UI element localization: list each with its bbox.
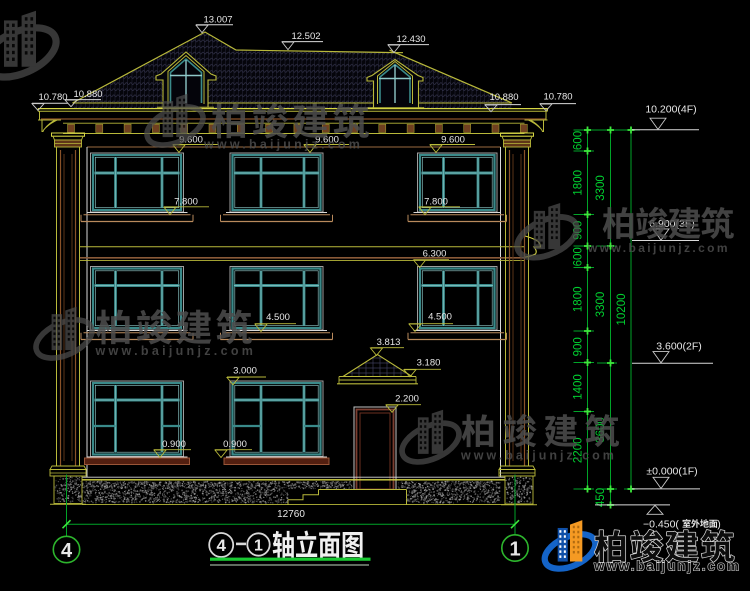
svg-text:900: 900 <box>573 337 585 356</box>
svg-text:1400: 1400 <box>573 374 585 400</box>
svg-text:3300: 3300 <box>595 175 607 201</box>
svg-text:9.600: 9.600 <box>441 135 465 146</box>
svg-text:3300: 3300 <box>595 292 607 318</box>
svg-text:www.baijunjz.com: www.baijunjz.com <box>593 559 741 574</box>
svg-text:1800: 1800 <box>573 170 585 196</box>
svg-text:1: 1 <box>509 538 520 560</box>
svg-text:): ) <box>717 519 721 531</box>
svg-text:www.baijunjz.com: www.baijunjz.com <box>203 138 363 152</box>
svg-text:www.baijunjz.com: www.baijunjz.com <box>460 449 617 463</box>
svg-text:10.880: 10.880 <box>73 89 102 100</box>
svg-text:4.500: 4.500 <box>428 312 452 323</box>
svg-text:−0.450(: −0.450( <box>643 519 679 531</box>
svg-text:3.813: 3.813 <box>377 337 401 348</box>
svg-text:1800: 1800 <box>573 287 585 313</box>
svg-text:10200: 10200 <box>616 294 628 326</box>
svg-text:4: 4 <box>61 540 73 562</box>
svg-text:10.780: 10.780 <box>38 92 67 103</box>
svg-text:1: 1 <box>254 538 263 555</box>
svg-text:2.200: 2.200 <box>395 394 419 405</box>
svg-text:0.900: 0.900 <box>162 439 186 450</box>
svg-text:600: 600 <box>573 131 585 150</box>
svg-text:±0.000(1F): ±0.000(1F) <box>646 466 697 478</box>
svg-text:7.800: 7.800 <box>424 197 448 208</box>
svg-text:6.300: 6.300 <box>423 249 447 260</box>
svg-text:www.baijunjz.com: www.baijunjz.com <box>95 344 257 358</box>
svg-text:600: 600 <box>573 247 585 266</box>
svg-text:4.500: 4.500 <box>266 312 290 323</box>
svg-text:12.502: 12.502 <box>291 31 320 42</box>
svg-text:10.200(4F): 10.200(4F) <box>645 104 696 116</box>
svg-text:10.780: 10.780 <box>543 92 572 103</box>
svg-text:0.900: 0.900 <box>223 439 247 450</box>
svg-text:www.baijunjz.com: www.baijunjz.com <box>587 241 730 255</box>
svg-text:12.430: 12.430 <box>396 34 425 45</box>
svg-text:10.880: 10.880 <box>489 92 518 103</box>
svg-text:3.180: 3.180 <box>417 358 441 369</box>
svg-text:13.007: 13.007 <box>203 15 232 26</box>
svg-text:450: 450 <box>595 488 607 507</box>
svg-text:4: 4 <box>216 536 226 555</box>
svg-text:12760: 12760 <box>277 509 305 520</box>
svg-text:3.600(2F): 3.600(2F) <box>656 341 702 353</box>
svg-text:7.800: 7.800 <box>174 197 198 208</box>
svg-text:3.000: 3.000 <box>233 366 257 377</box>
